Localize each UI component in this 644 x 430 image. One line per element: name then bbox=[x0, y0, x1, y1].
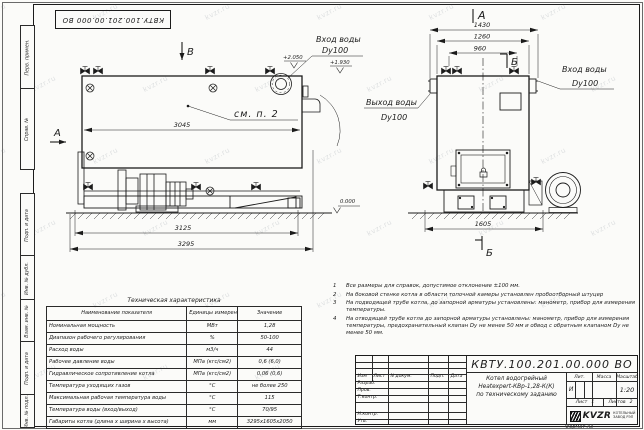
tech-row: Диапазон рабочего регулирования%50-100 bbox=[47, 333, 302, 345]
tech-cell: 44 bbox=[238, 345, 302, 357]
sight-glass bbox=[500, 93, 521, 110]
note-item: 1Все размеры для справок, допустимое отк… bbox=[333, 283, 635, 290]
doc-name-line3: по техническому заданию bbox=[476, 392, 557, 400]
svg-text:1430: 1430 bbox=[474, 21, 491, 29]
title-block: Изм Лист N докум. Подп. Дата Разраб. Про… bbox=[355, 355, 638, 425]
kvzr-logo-icon bbox=[570, 411, 581, 422]
note-item: 3На подводящей трубе котла, до запорной … bbox=[333, 300, 635, 314]
valve-icon bbox=[81, 67, 90, 74]
sheet-label: Лист bbox=[576, 400, 588, 405]
tb-prov: Пров. bbox=[356, 389, 388, 394]
svg-text:1260: 1260 bbox=[474, 33, 491, 41]
svg-text:3125: 3125 bbox=[175, 224, 192, 232]
note-text: На боковой стенке котла в области топочн… bbox=[346, 292, 603, 299]
tech-cell: °С bbox=[187, 405, 238, 417]
tech-row: Гидравлическое сопротивление котлаМПа (к… bbox=[47, 369, 302, 381]
svg-text:Б: Б bbox=[486, 248, 493, 259]
tech-cell: МПа (кгс/см2) bbox=[187, 369, 238, 381]
tech-row: Температура уходящих газов°Сне более 250 bbox=[47, 381, 302, 393]
doc-name-line2: Heatexpert-КВр-1,28-К(К) bbox=[478, 384, 554, 392]
fan-blower bbox=[529, 173, 581, 213]
note-item: 2На боковой стенке котла в области топоч… bbox=[333, 292, 635, 299]
tb-col-data: Дата bbox=[449, 375, 466, 380]
tech-cell: мм bbox=[187, 417, 238, 429]
svg-text:Dy100: Dy100 bbox=[572, 79, 598, 88]
tech-cell: Номинальная мощность bbox=[47, 321, 187, 333]
svg-text:Вход воды: Вход воды bbox=[316, 35, 361, 44]
side-left-panel bbox=[78, 152, 84, 204]
lit-mass-scale: Лит. Масса Масштаб И 1:20 Лист 1 Листов … bbox=[566, 373, 637, 424]
front-inlet-label: Вход воды Dy100 bbox=[538, 65, 614, 89]
valve-icon bbox=[266, 67, 275, 74]
dim-3125: 3125 bbox=[75, 210, 298, 236]
svg-text:+1.930: +1.930 bbox=[330, 60, 350, 66]
tech-cell: °С bbox=[187, 381, 238, 393]
tech-row: Расход водым3/ч44 bbox=[47, 345, 302, 357]
kvzr-logo: KVZR КОТЕЛЬНЫЙ ЗАВОД РЭП bbox=[567, 406, 638, 425]
lifting-lug-icon bbox=[86, 152, 94, 160]
tech-cell: Гидравлическое сопротивление котла bbox=[47, 369, 187, 381]
format-value: А3 bbox=[587, 424, 594, 430]
note-text: Все размеры для справок, допустимое откл… bbox=[346, 283, 520, 290]
furnace-door bbox=[451, 150, 510, 188]
section-marker-b-bottom: Б bbox=[475, 236, 493, 259]
doc-name: Котел водогрейный Heatexpert-КВр-1,28-К(… bbox=[466, 373, 566, 424]
sheets-value: 2 bbox=[630, 400, 633, 405]
tech-cell: 0,06 (0,6) bbox=[238, 369, 302, 381]
format-label: Формат bbox=[565, 424, 585, 430]
valve-icon bbox=[252, 183, 261, 190]
tech-cell: м3/ч bbox=[187, 345, 238, 357]
scale-value: 1:20 bbox=[616, 381, 638, 398]
tech-cell: МПа (кгс/см2) bbox=[187, 357, 238, 369]
tech-cell: Температура уходящих газов bbox=[47, 381, 187, 393]
tech-cell: Габариты котла (длина х ширина х высота) bbox=[47, 417, 187, 429]
dim-3295: 3295 bbox=[70, 150, 313, 252]
tech-row: Рабочее давление водыМПа (кгс/см2)0,6 (6… bbox=[47, 357, 302, 369]
doc-number: КВТУ.100.201.00.000 ВО bbox=[466, 356, 637, 373]
valve-icon bbox=[84, 183, 93, 190]
tech-cell: % bbox=[187, 333, 238, 345]
sheets-label: Листов bbox=[608, 400, 625, 405]
doc-name-line1: Котел водогрейный bbox=[486, 376, 547, 384]
valve-icon bbox=[442, 67, 451, 74]
svg-text:3295: 3295 bbox=[178, 240, 195, 248]
elevation-0: 0.000 bbox=[334, 199, 361, 213]
tech-cell: 3295х1605х2050 bbox=[238, 417, 302, 429]
elevation-2050: +2.050 bbox=[283, 55, 306, 68]
boiler-shell-side bbox=[82, 76, 302, 168]
tb-col-podp: Подп. bbox=[429, 375, 448, 380]
note-item: 4На отводящей трубе котла до запорной ар… bbox=[333, 316, 635, 337]
sheets-cell: Листов 2 bbox=[603, 398, 638, 406]
note-number: 1 bbox=[333, 283, 346, 290]
lit-value: И bbox=[567, 381, 575, 398]
lifting-lug-icon bbox=[86, 84, 94, 92]
svg-text:+2.050: +2.050 bbox=[283, 55, 303, 61]
ground-line-front bbox=[408, 213, 578, 219]
note-number: 2 bbox=[333, 292, 346, 299]
dim-3045: 3045 bbox=[84, 121, 300, 132]
tech-row: Температура воды (вход/выход)°С70/95 bbox=[47, 405, 302, 417]
tech-header-units: Единицы измерения bbox=[187, 307, 238, 321]
tb-utv: Утв. bbox=[356, 420, 388, 425]
valve-icon bbox=[424, 182, 433, 189]
scale-header: Масштаб bbox=[616, 373, 638, 381]
callout-see-p2: см. п. 2 bbox=[187, 105, 298, 120]
tech-cell: Рабочее давление воды bbox=[47, 357, 187, 369]
section-marker-b-top: Б bbox=[500, 54, 518, 68]
svg-text:0.000: 0.000 bbox=[340, 199, 356, 205]
note-text: На подводящей трубе котла, до запорной а… bbox=[346, 300, 635, 314]
front-base bbox=[444, 190, 524, 212]
inlet-flange-right bbox=[529, 79, 538, 93]
tb-nkontr: Н.контр. bbox=[356, 413, 388, 418]
tb-col-list: Лист bbox=[372, 375, 388, 380]
tech-characteristics: Техническая характеристика Наименование … bbox=[46, 297, 302, 429]
format-note: Формат А3 bbox=[565, 424, 594, 430]
tech-cell: 50-100 bbox=[238, 333, 302, 345]
tech-cell: 1,28 bbox=[238, 321, 302, 333]
tech-row: Номинальная мощностьМВт1,28 bbox=[47, 321, 302, 333]
lit-header: Лит. bbox=[567, 373, 592, 381]
svg-text:1605: 1605 bbox=[475, 220, 492, 228]
door-handle bbox=[480, 168, 487, 177]
note-number: 4 bbox=[333, 316, 346, 337]
view-marker-b: В bbox=[180, 42, 195, 60]
tech-table: Наименование показателя Единицы измерени… bbox=[46, 306, 302, 429]
sheet-cell: Лист 1 bbox=[567, 398, 603, 406]
valve-icon bbox=[206, 67, 215, 74]
tech-cell: Максимальная рабочая температура воды bbox=[47, 393, 187, 405]
tech-cell: МВт bbox=[187, 321, 238, 333]
tech-cell: Диапазон рабочего регулирования bbox=[47, 333, 187, 345]
svg-text:Вход воды: Вход воды bbox=[562, 65, 607, 74]
kvzr-logo-subtitle: КОТЕЛЬНЫЙ ЗАВОД РЭП bbox=[613, 412, 635, 420]
valve-icon bbox=[532, 178, 541, 185]
tech-header-row: Наименование показателя Единицы измерени… bbox=[47, 307, 302, 321]
tech-row: Максимальная рабочая температура воды°С1… bbox=[47, 393, 302, 405]
tb-col-ndokum: N докум. bbox=[389, 375, 428, 380]
tech-cell: Расход воды bbox=[47, 345, 187, 357]
svg-text:Dy100: Dy100 bbox=[322, 46, 348, 55]
svg-text:В: В bbox=[187, 47, 194, 58]
tech-row: Габариты котла (длина х ширина х высота)… bbox=[47, 417, 302, 429]
kvzr-logo-word: KVZR bbox=[583, 411, 612, 421]
outlet-elbow bbox=[302, 86, 340, 146]
tech-cell: не более 250 bbox=[238, 381, 302, 393]
tech-cell: 0,6 (6,0) bbox=[238, 357, 302, 369]
notes-list: 1Все размеры для справок, допустимое отк… bbox=[333, 283, 635, 339]
svg-text:960: 960 bbox=[474, 45, 486, 53]
tech-header-value: Значение bbox=[238, 307, 302, 321]
view-marker-a: А bbox=[50, 128, 66, 144]
kvzr-logo-sub2: ЗАВОД РЭП bbox=[613, 416, 635, 420]
tech-table-title: Техническая характеристика bbox=[46, 297, 302, 304]
elevation-1930: +1.930 bbox=[330, 60, 352, 73]
side-view: В А см. п. 2 3045 Вход воды Dy100 +2.050… bbox=[50, 35, 363, 252]
outlet-flange-left bbox=[428, 79, 437, 93]
tb-tkontr: Т.контр. bbox=[356, 396, 388, 401]
valve-icon bbox=[94, 67, 103, 74]
tech-cell: 115 bbox=[238, 393, 302, 405]
svg-text:3045: 3045 bbox=[174, 121, 191, 129]
tb-col-izm: Изм bbox=[356, 375, 372, 380]
svg-text:Dy100: Dy100 bbox=[381, 113, 407, 122]
note-number: 3 bbox=[333, 300, 346, 314]
sheet-value: 1 bbox=[591, 400, 594, 405]
svg-text:см. п. 2: см. п. 2 bbox=[234, 109, 279, 120]
front-view: А Выход воды Dy100 Вход воды bbox=[364, 9, 614, 259]
ground-line-side bbox=[66, 213, 332, 219]
tb-razrab: Разраб. bbox=[356, 382, 388, 387]
front-outlet-label: Выход воды Dy100 bbox=[364, 94, 430, 122]
note-text: На отводящей трубе котла до запорной арм… bbox=[346, 316, 635, 337]
tech-cell: °С bbox=[187, 393, 238, 405]
tech-cell: Температура воды (вход/выход) bbox=[47, 405, 187, 417]
valve-icon bbox=[453, 67, 462, 74]
tech-cell: 70/95 bbox=[238, 405, 302, 417]
tech-header-name: Наименование показателя bbox=[47, 307, 187, 321]
svg-text:А: А bbox=[53, 128, 61, 139]
svg-text:Выход воды: Выход воды bbox=[366, 98, 417, 107]
mass-header: Масса bbox=[592, 373, 616, 381]
lifting-lug-icon bbox=[209, 84, 217, 92]
